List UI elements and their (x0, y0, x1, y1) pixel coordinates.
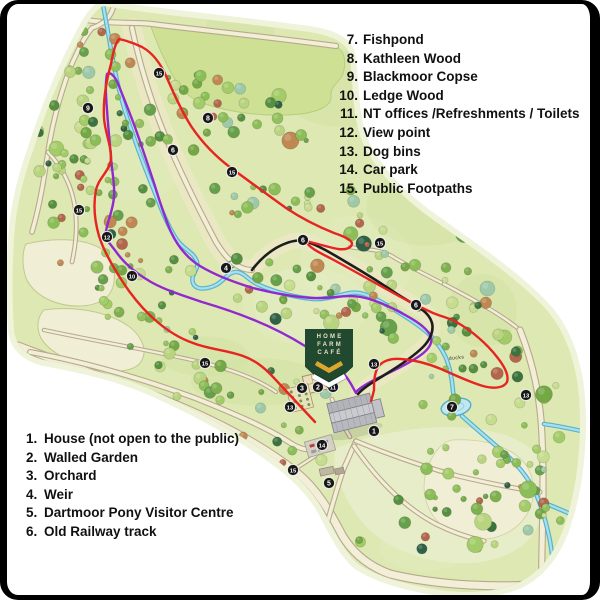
legend-item-number: 12. (330, 124, 358, 143)
map-marker-1: 1 (368, 425, 379, 436)
map-marker-15: 15 (287, 464, 298, 475)
legend-item: 13.Dog bins (330, 143, 580, 162)
svg-text:15: 15 (202, 361, 209, 367)
legend-top-right: 7.Fishpond8.Kathleen Wood9.Blackmoor Cop… (330, 31, 580, 198)
svg-text:15: 15 (290, 468, 297, 474)
home-farm-cafe-sign: HOME FARM CAFÉ (305, 329, 353, 393)
legend-item-number: 15. (330, 180, 358, 199)
svg-text:5: 5 (327, 480, 331, 487)
legend-item: 10.Ledge Wood (330, 87, 580, 106)
svg-text:15: 15 (76, 208, 83, 214)
legend-item-number: 14. (330, 161, 358, 180)
map-marker-13: 13 (368, 358, 379, 369)
cafe-sign-line1: HOME (305, 329, 353, 341)
map-marker-13: 13 (520, 389, 531, 400)
svg-text:13: 13 (287, 405, 294, 411)
legend-item: 15.Public Footpaths (330, 180, 580, 199)
legend-item: 9.Blackmoor Copse (330, 68, 580, 87)
legend-item-label: View point (363, 124, 430, 143)
legend-item: 11.NT offices /Refreshments / Toilets (330, 105, 580, 124)
svg-text:15: 15 (156, 71, 163, 77)
svg-text:9: 9 (86, 105, 90, 112)
svg-text:6: 6 (301, 237, 305, 244)
legend-item: 8.Kathleen Wood (330, 50, 580, 69)
white-chevron-icon (309, 373, 349, 389)
map-marker-10: 10 (126, 270, 137, 281)
legend-item: 5.Dartmoor Pony Visitor Centre (26, 504, 239, 523)
map-marker-6: 6 (297, 234, 308, 245)
legend-item-number: 7. (330, 31, 358, 50)
legend-item-number: 13. (330, 143, 358, 162)
map-marker-6: 6 (410, 299, 421, 310)
legend-item: 7.Fishpond (330, 31, 580, 50)
map-marker-15: 15 (226, 166, 237, 177)
map-marker-15: 15 (374, 237, 385, 248)
legend-item: 4.Weir (26, 486, 239, 505)
svg-text:15: 15 (377, 241, 384, 247)
legend-item-label: Ledge Wood (363, 87, 444, 106)
legend-item-number: 8. (330, 50, 358, 69)
map-marker-6: 6 (167, 144, 178, 155)
svg-text:7: 7 (450, 404, 454, 411)
svg-text:14: 14 (319, 443, 326, 449)
legend-item-number: 6. (26, 523, 40, 542)
legend-item-number: 11. (330, 105, 358, 124)
svg-text:3: 3 (300, 385, 304, 392)
map-marker-15: 15 (199, 357, 210, 368)
legend-item-label: Public Footpaths (363, 180, 473, 199)
cafe-sign-line3: CAFÉ (305, 349, 353, 357)
legend-item-label: Dog bins (363, 143, 421, 162)
map-marker-8: 8 (202, 112, 213, 123)
legend-item-number: 1. (26, 430, 40, 449)
legend-item-label: Weir (44, 486, 73, 505)
legend-item-number: 3. (26, 467, 40, 486)
map-marker-12: 12 (101, 231, 112, 242)
legend-item-number: 5. (26, 504, 40, 523)
svg-text:8: 8 (206, 115, 210, 122)
map-marker-9: 9 (82, 102, 93, 113)
map-marker-13: 13 (284, 401, 295, 412)
legend-item-label: Kathleen Wood (363, 50, 461, 69)
svg-text:15: 15 (229, 170, 236, 176)
legend-item-label: Fishpond (363, 31, 424, 50)
legend-item: 1.House (not open to the public) (26, 430, 239, 449)
legend-item: 6.Old Railway track (26, 523, 239, 542)
legend-item-label: Blackmoor Copse (363, 68, 478, 87)
legend-item-number: 9. (330, 68, 358, 87)
legend-bottom-left: 1.House (not open to the public)2.Walled… (26, 430, 239, 542)
map-marker-15: 15 (73, 204, 84, 215)
legend-item-label: Car park (363, 161, 418, 180)
map-marker-4: 4 (220, 262, 231, 273)
svg-text:6: 6 (414, 302, 418, 309)
svg-text:1: 1 (372, 428, 376, 435)
legend-item: 12.View point (330, 124, 580, 143)
legend-item-label: Walled Garden (44, 449, 138, 468)
legend-item-label: NT offices /Refreshments / Toilets (363, 105, 580, 124)
map-marker-15: 15 (153, 67, 164, 78)
map-frame: ducks12345666789101112131313141515151515… (0, 0, 600, 600)
legend-item-number: 4. (26, 486, 40, 505)
svg-text:13: 13 (371, 362, 378, 368)
svg-text:13: 13 (523, 393, 530, 399)
legend-item-number: 10. (330, 87, 358, 106)
svg-text:6: 6 (171, 147, 175, 154)
legend-item-label: Old Railway track (44, 523, 157, 542)
legend-item-label: Dartmoor Pony Visitor Centre (44, 504, 234, 523)
svg-text:12: 12 (104, 235, 110, 241)
legend-item-number: 2. (26, 449, 40, 468)
legend-item-label: House (not open to the public) (44, 430, 239, 449)
legend-item-label: Orchard (44, 467, 97, 486)
legend-item: 14.Car park (330, 161, 580, 180)
svg-text:4: 4 (224, 265, 228, 272)
svg-text:10: 10 (129, 274, 135, 280)
map-marker-5: 5 (323, 477, 334, 488)
legend-item: 3.Orchard (26, 467, 239, 486)
legend-item: 2.Walled Garden (26, 449, 239, 468)
map-marker-7: 7 (446, 401, 457, 412)
map-marker-14: 14 (316, 439, 327, 450)
cafe-sign-line2: FARM (305, 341, 353, 349)
